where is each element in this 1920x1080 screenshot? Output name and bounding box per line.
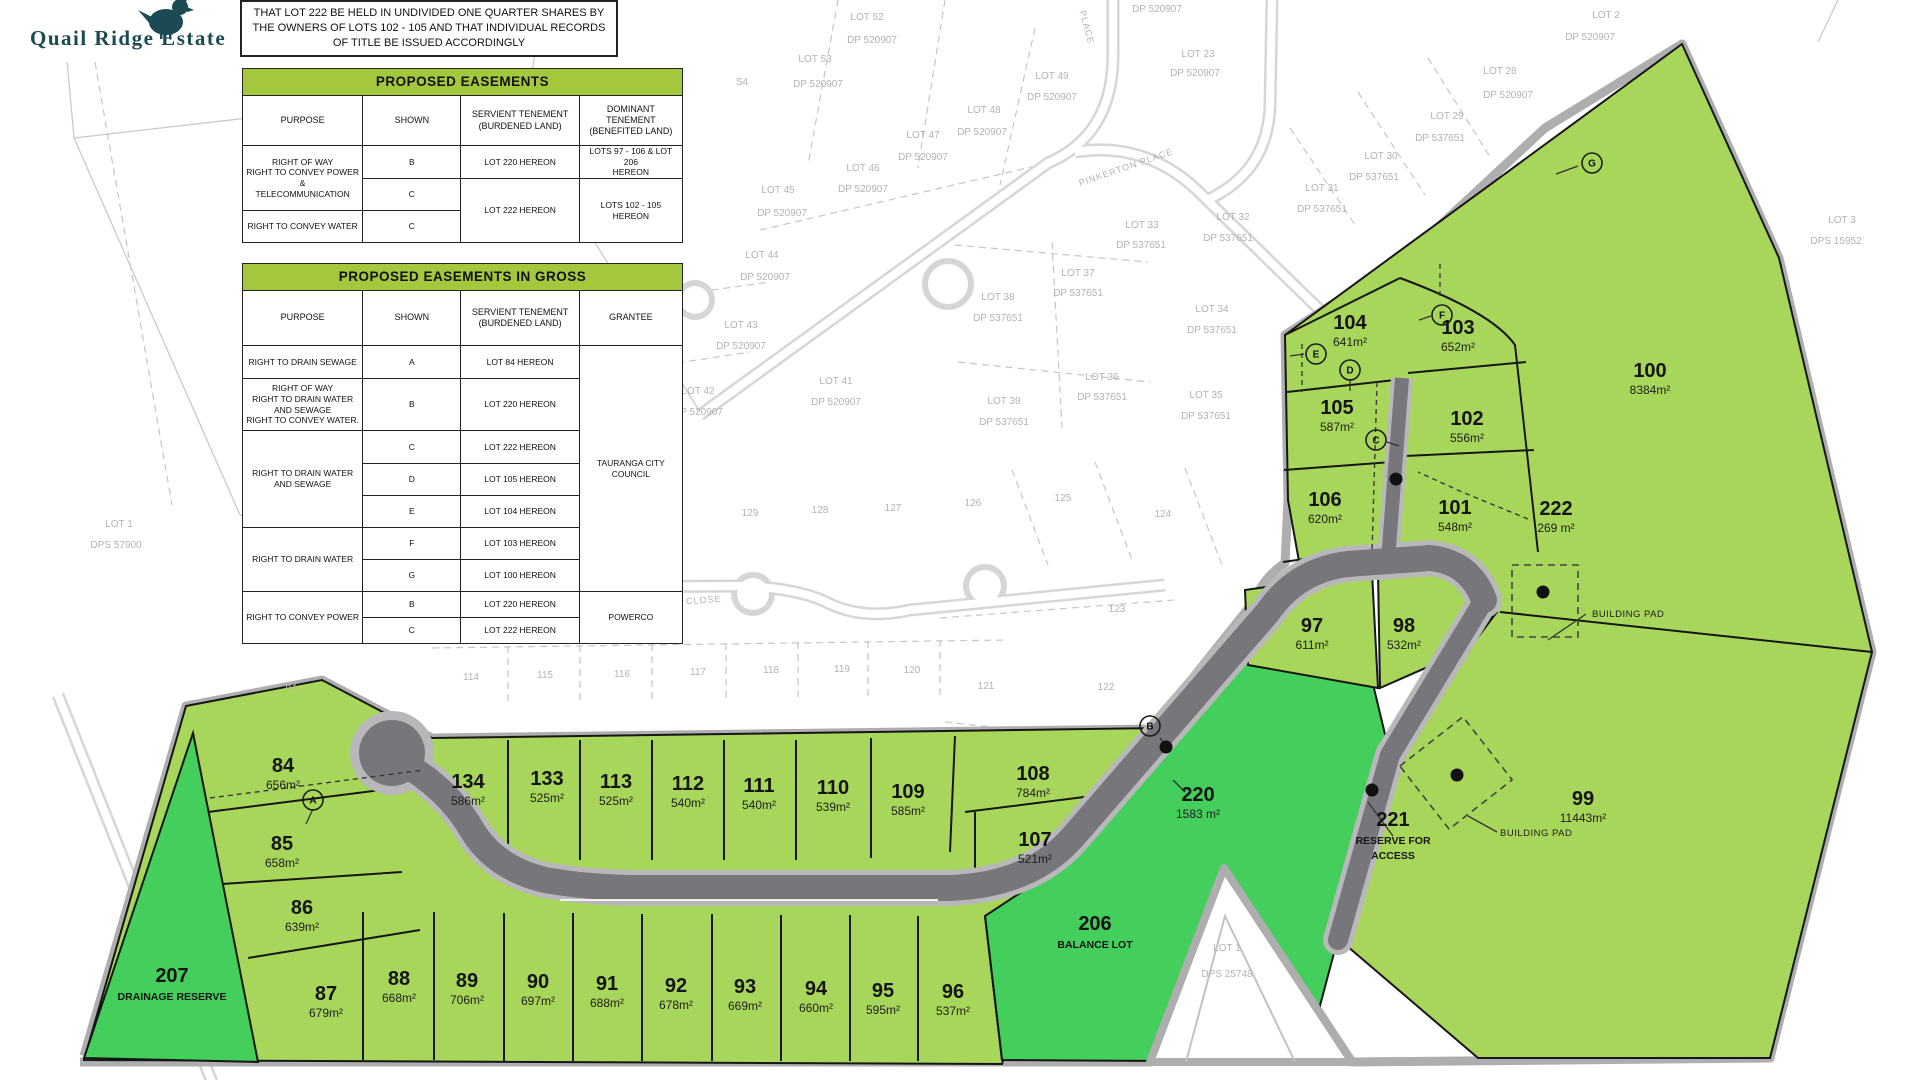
scheme-plan-page: S4LOT 52DP 520907DP 520907LOT 53DP 52090… <box>0 0 1920 1080</box>
bg-label: DP 537651 <box>1187 325 1237 336</box>
lot-label-104: 104 <box>1333 312 1367 334</box>
bg-label: DPS 57900 <box>90 540 142 551</box>
marker-letter-F: F <box>1439 311 1445 322</box>
lot-area-111: 540m² <box>742 798 776 812</box>
lot-sub-221: RESERVE FOR <box>1355 835 1430 847</box>
lot-label-92: 92 <box>665 975 687 997</box>
lot-area-100: 8384m² <box>1630 383 1671 397</box>
column-header: GRANTEE <box>579 291 682 346</box>
lot-area-89: 706m² <box>450 993 484 1007</box>
lot-label-110: 110 <box>817 777 849 799</box>
bg-label: LOT 42 <box>681 386 715 397</box>
lot-area-103: 652m² <box>1441 340 1475 354</box>
column-header: SHOWN <box>363 291 461 346</box>
lot-label-89: 89 <box>456 970 478 992</box>
bg-label: LOT 44 <box>745 250 779 261</box>
marker-letter-G: G <box>1588 159 1596 170</box>
table-cell: B <box>363 379 461 431</box>
bg-label: DP 520907 <box>1132 4 1182 15</box>
lot-label-220: 220 <box>1181 784 1214 806</box>
lot-label-105: 105 <box>1320 397 1353 419</box>
lot-label-222: 222 <box>1539 498 1572 520</box>
table-cell: E <box>363 496 461 528</box>
bg-label: DP 520907 <box>847 35 897 46</box>
bg-label: DP 520907 <box>757 208 807 219</box>
table-cell: RIGHT TO DRAIN SEWAGE <box>243 346 363 379</box>
bg-label: 124 <box>1155 509 1172 520</box>
bg-label: DP 537651 <box>1116 240 1166 251</box>
lot-label-98: 98 <box>1393 615 1415 637</box>
table-cell: LOT 100 HEREON <box>461 560 579 592</box>
lot-area-134: 586m² <box>451 794 485 808</box>
table-cell: F <box>363 528 461 560</box>
lot-area-101: 548m² <box>1438 520 1472 534</box>
bg-label: LOT 45 <box>761 185 795 196</box>
bg-label: LOT 39 <box>987 396 1021 407</box>
table-cell: LOT 222 HEREON <box>461 618 579 644</box>
lot-label-90: 90 <box>527 971 549 993</box>
lot-area-110: 539m² <box>816 800 850 814</box>
table-cell: C <box>363 179 461 211</box>
table-cell: RIGHT TO DRAIN WATER AND SEWAGE <box>243 431 363 528</box>
lot-sub-206: BALANCE LOT <box>1057 939 1133 951</box>
logo-title: Quail Ridge Estate <box>30 26 226 51</box>
bg-label: 129 <box>742 508 759 519</box>
bg-label: DP 537651 <box>1181 411 1231 422</box>
bg-label: LOT 49 <box>1035 71 1069 82</box>
lot-label-221: 221 <box>1376 809 1409 831</box>
marker-letter-A: A <box>309 796 316 807</box>
bg-label: 117 <box>690 667 706 678</box>
table-cell: LOT 104 HEREON <box>461 496 579 528</box>
column-header: SHOWN <box>363 96 461 146</box>
bg-label: 116 <box>614 669 630 680</box>
table-cell: RIGHT OF WAY RIGHT TO DRAIN WATER AND SE… <box>243 379 363 431</box>
table-cell: LOTS 102 - 105 HEREON <box>579 179 682 243</box>
lot-area-95: 595m² <box>866 1003 900 1017</box>
lot-area-97: 611m² <box>1295 638 1328 652</box>
table-cell: B <box>363 592 461 618</box>
bg-label: 121 <box>978 681 995 692</box>
column-header: PURPOSE <box>243 291 363 346</box>
bg-label: 119 <box>834 664 850 675</box>
bg-label: LOT 47 <box>906 130 940 141</box>
lot-area-96: 537m² <box>936 1004 970 1018</box>
proposed-easements-table: PROPOSED EASEMENTSPURPOSESHOWNSERVIENT T… <box>242 68 683 243</box>
bg-label: LOT 48 <box>967 105 1001 116</box>
bg-label: 83 <box>285 681 297 692</box>
lot-label-133: 133 <box>530 768 563 790</box>
marker-letter-C: C <box>1372 436 1379 447</box>
table-cell: G <box>363 560 461 592</box>
lot-area-106: 620m² <box>1308 512 1342 526</box>
bg-label: LOT 32 <box>1216 212 1250 223</box>
table-cell: LOT 222 HEREON <box>461 431 579 464</box>
table-cell: C <box>363 431 461 464</box>
lot-area-108: 784m² <box>1016 786 1050 800</box>
table-cell: D <box>363 464 461 496</box>
table-cell: TAURANGA CITY COUNCIL <box>579 346 682 592</box>
bg-label: 123 <box>1109 604 1126 615</box>
annotation-building-pad: BUILDING PAD <box>1500 828 1572 839</box>
lot-label-91: 91 <box>596 973 618 995</box>
marker-letter-B: B <box>1146 722 1153 733</box>
table-cell: LOT 220 HEREON <box>461 592 579 618</box>
bg-label: DP 520907 <box>838 184 888 195</box>
column-header: SERVIENT TENEMENT (BURDENED LAND) <box>461 291 579 346</box>
column-header: DOMINANT TENEMENT (BENEFITED LAND) <box>579 96 682 146</box>
lot-area-113: 525m² <box>599 794 633 808</box>
lot-label-97: 97 <box>1301 615 1323 637</box>
table-cell: RIGHT TO CONVEY WATER <box>243 211 363 243</box>
bg-label: DP 520907 <box>740 272 790 283</box>
bg-label: LOT 36 <box>1085 372 1119 383</box>
bg-label: 128 <box>812 505 829 516</box>
bg-label: LOT 43 <box>724 320 758 331</box>
bg-label: 114 <box>463 672 479 683</box>
lot-sub-221: ACCESS <box>1371 850 1415 862</box>
lot-area-93: 669m² <box>728 999 762 1013</box>
table-cell: LOT 220 HEREON <box>461 379 579 431</box>
lot-area-84: 656m² <box>266 778 300 792</box>
lot-area-86: 639m² <box>285 920 319 934</box>
bg-label: DP 537651 <box>1053 288 1103 299</box>
table-cell: C <box>363 211 461 243</box>
bg-label: 120 <box>904 665 921 676</box>
lot-label-106: 106 <box>1308 489 1341 511</box>
bg-label: LOT 23 <box>1181 49 1215 60</box>
lot-area-92: 678m² <box>659 998 693 1012</box>
lot-area-107: 521m² <box>1018 852 1052 866</box>
bg-label: LOT 34 <box>1195 304 1229 315</box>
bg-label: LOT 33 <box>1125 220 1159 231</box>
table-cell: B <box>363 146 461 179</box>
lot-area-102: 556m² <box>1450 431 1484 445</box>
lot-label-113: 113 <box>600 771 632 793</box>
lot-label-86: 86 <box>291 897 313 919</box>
lot-area-133: 525m² <box>530 791 564 805</box>
table-cell: POWERCO <box>579 592 682 644</box>
lot-label-107: 107 <box>1018 829 1051 851</box>
table-cell: LOT 220 HEREON <box>461 146 579 179</box>
lot-area-105: 587m² <box>1320 420 1354 434</box>
bg-label: DP 537651 <box>1349 172 1399 183</box>
bg-label: DP 520907 <box>1170 68 1220 79</box>
bg-label: LOT 30 <box>1364 151 1398 162</box>
table-cell: RIGHT TO CONVEY POWER <box>243 592 363 644</box>
lot-label-95: 95 <box>872 980 894 1002</box>
note-box: THAT LOT 222 BE HELD IN UNDIVIDED ONE QU… <box>240 0 618 57</box>
lot-label-111: 111 <box>743 775 774 797</box>
marker-letter-D: D <box>1346 366 1353 377</box>
bg-label: DP 537651 <box>1297 204 1347 215</box>
bg-label: DP 520907 <box>957 127 1007 138</box>
table-cell: LOT 84 HEREON <box>461 346 579 379</box>
bg-label: LOT 28 <box>1483 66 1517 77</box>
bg-label: DP 537651 <box>1203 233 1253 244</box>
lot-label-102: 102 <box>1450 408 1483 430</box>
proposed-easements-in-gross-table: PROPOSED EASEMENTS IN GROSSPURPOSESHOWNS… <box>242 263 683 644</box>
bg-label: DPS 15952 <box>1810 236 1862 247</box>
lot-area-109: 585m² <box>891 804 925 818</box>
lot-area-112: 540m² <box>671 796 705 810</box>
bg-label: DP 520907 <box>1565 32 1615 43</box>
bg-label: LOT 31 <box>1305 183 1339 194</box>
lot-label-88: 88 <box>388 968 410 990</box>
column-header: PURPOSE <box>243 96 363 146</box>
lot-label-109: 109 <box>891 781 924 803</box>
lot-label-103: 103 <box>1441 317 1474 339</box>
lot-label-100: 100 <box>1633 360 1666 382</box>
bg-label: 118 <box>763 665 779 676</box>
bg-label: LOT 41 <box>819 376 853 387</box>
lot-label-85: 85 <box>271 833 293 855</box>
bg-label: DP 537651 <box>1077 392 1127 403</box>
lot-area-94: 660m² <box>799 1001 833 1015</box>
bg-label: LOT 46 <box>846 163 880 174</box>
bg-label: DP 520907 <box>716 341 766 352</box>
lot-area-220: 1583 m² <box>1176 807 1220 821</box>
table-cell: LOTS 97 - 106 & LOT 206 HEREON <box>579 146 682 179</box>
column-header: SERVIENT TENEMENT (BURDENED LAND) <box>461 96 579 146</box>
bg-label: LOT 3 <box>1828 215 1856 226</box>
bg-label: DP 537651 <box>973 313 1023 324</box>
table-cell: LOT 222 HEREON <box>461 179 579 243</box>
lot-sub-207: DRAINAGE RESERVE <box>118 991 227 1003</box>
lot-label-87: 87 <box>315 983 337 1005</box>
bg-label: DP 520907 <box>811 397 861 408</box>
bg-label: DP 520907 <box>898 152 948 163</box>
bg-label: DP 537651 <box>979 417 1029 428</box>
marker-letter-E: E <box>1313 350 1320 361</box>
bg-label: LOT 35 <box>1189 390 1223 401</box>
lot-area-87: 679m² <box>309 1006 343 1020</box>
lot-area-85: 658m² <box>265 856 299 870</box>
lot-label-134: 134 <box>451 771 485 793</box>
bg-label: DP 520907 <box>1483 90 1533 101</box>
lot-label-206: 206 <box>1078 913 1111 935</box>
lot-area-91: 688m² <box>590 996 624 1010</box>
lot-label-84: 84 <box>272 755 295 777</box>
table-cell: LOT 105 HEREON <box>461 464 579 496</box>
annotation-building-pad: BUILDING PAD <box>1592 609 1664 620</box>
table-cell: RIGHT TO DRAIN WATER <box>243 528 363 592</box>
lot-area-99: 11443m² <box>1560 811 1606 825</box>
bg-label: 127 <box>885 503 902 514</box>
bg-label: LOT 37 <box>1061 268 1095 279</box>
lot-label-99: 99 <box>1572 788 1594 810</box>
bg-label: LOT 53 <box>798 54 832 65</box>
street-label: CLOSE <box>686 594 722 606</box>
lot-area-90: 697m² <box>521 994 555 1008</box>
lot-label-101: 101 <box>1438 497 1471 519</box>
logo: Quail Ridge Estate <box>8 0 228 62</box>
bg-label: S4 <box>736 77 749 88</box>
lot-area-88: 668m² <box>382 991 416 1005</box>
table-title: PROPOSED EASEMENTS IN GROSS <box>243 264 683 291</box>
bg-label: DP 520907 <box>793 79 843 90</box>
bg-label: 115 <box>537 670 553 681</box>
lot-area-104: 641m² <box>1333 335 1367 349</box>
lot-label-93: 93 <box>734 976 756 998</box>
street-label: PLACE <box>1078 9 1097 45</box>
bg-label: LOT 29 <box>1430 111 1464 122</box>
lot-label-108: 108 <box>1016 763 1049 785</box>
bg-label: 126 <box>965 498 982 509</box>
bg-label: 125 <box>1055 493 1072 504</box>
table-cell: A <box>363 346 461 379</box>
table-cell: RIGHT OF WAY RIGHT TO CONVEY POWER & TEL… <box>243 146 363 211</box>
lot-label-96: 96 <box>942 981 964 1003</box>
table-cell: LOT 103 HEREON <box>461 528 579 560</box>
bg-label: 122 <box>1098 682 1115 693</box>
table-title: PROPOSED EASEMENTS <box>243 69 683 96</box>
bg-label: LOT 1 <box>105 519 133 530</box>
lot-area-98: 532m² <box>1387 638 1421 652</box>
lot-label-112: 112 <box>672 773 704 795</box>
table-cell: C <box>363 618 461 644</box>
bg-label: LOT 38 <box>981 292 1015 303</box>
bg-label: DP 520907 <box>1027 92 1077 103</box>
bg-label: DP 537651 <box>1415 133 1465 144</box>
lot-label-207: 207 <box>155 965 188 987</box>
lot-label-94: 94 <box>805 978 828 1000</box>
lot-area-222: 269 m² <box>1537 521 1574 535</box>
bg-label: LOT 52 <box>850 12 884 23</box>
bg-label: LOT 1 <box>1213 943 1241 954</box>
bg-label: LOT 2 <box>1592 10 1620 21</box>
bg-label: DPS 25748 <box>1201 969 1253 980</box>
